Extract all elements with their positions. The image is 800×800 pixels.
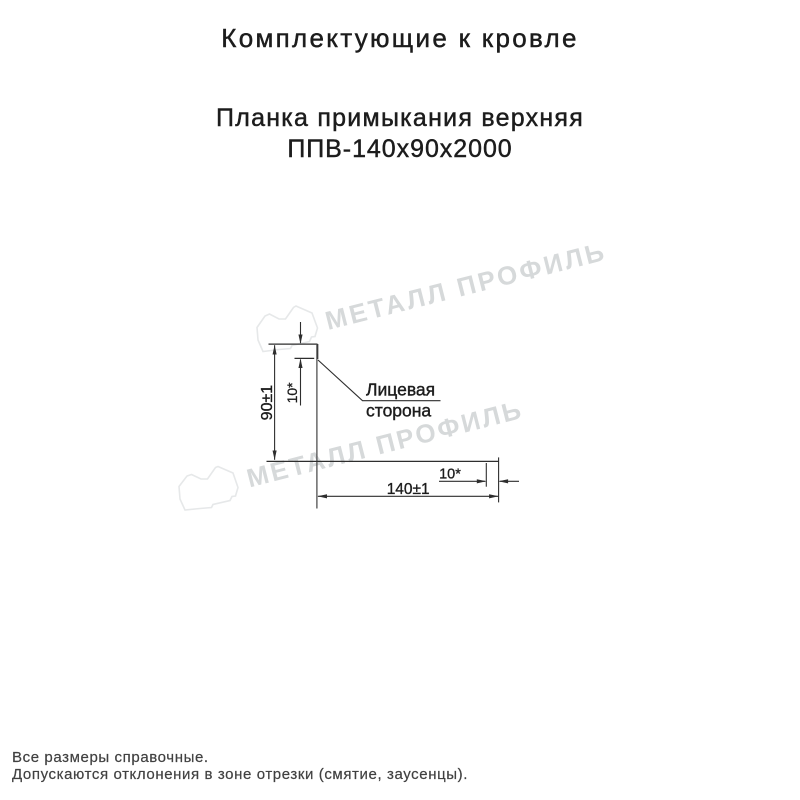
svg-text:140±1: 140±1 <box>387 481 430 498</box>
svg-text:90±1: 90±1 <box>259 385 276 421</box>
svg-text:Лицевая: Лицевая <box>366 380 435 400</box>
svg-text:МЕТАЛЛ ПРОФИЛЬ: МЕТАЛЛ ПРОФИЛЬ <box>322 236 609 336</box>
svg-text:10*: 10* <box>439 467 461 483</box>
svg-text:сторона: сторона <box>366 400 431 420</box>
svg-text:10*: 10* <box>284 382 300 404</box>
